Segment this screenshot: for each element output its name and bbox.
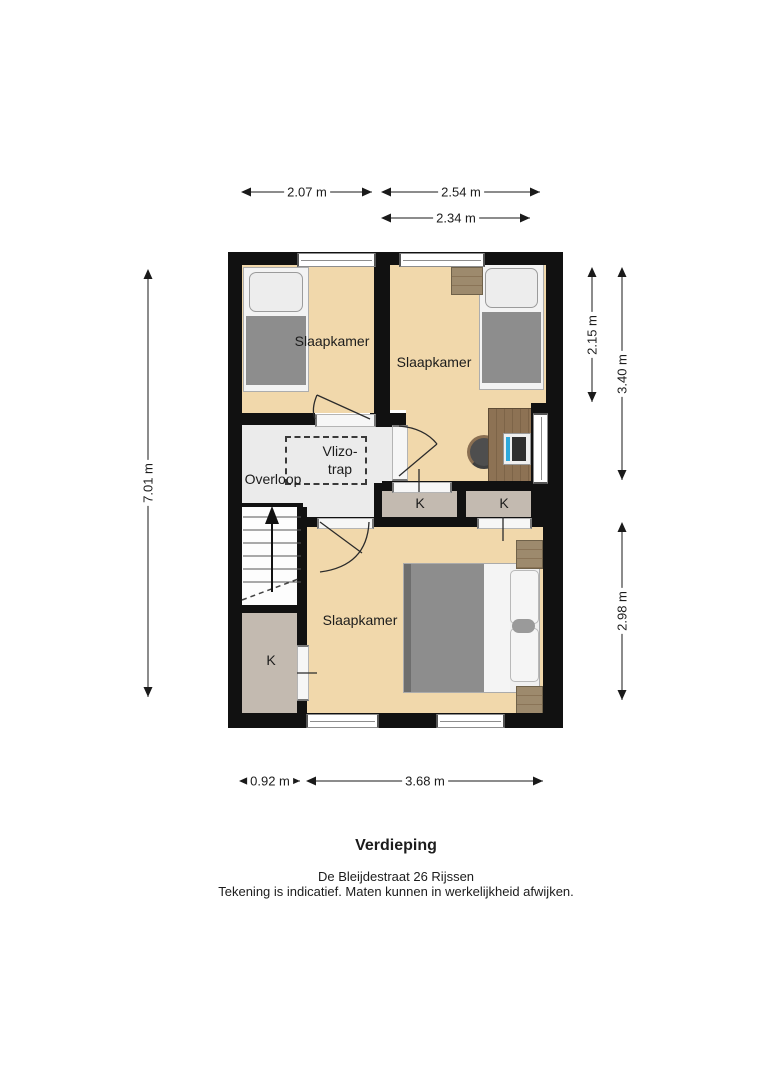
blanket xyxy=(482,312,541,383)
plan-disclaimer: Tekening is indicatief. Maten kunnen in … xyxy=(218,884,574,899)
laptop xyxy=(503,433,531,465)
dimension-label-top-1: 2.07 m xyxy=(284,185,330,200)
duvet xyxy=(484,564,510,692)
pillow xyxy=(510,570,539,624)
laptop-keyboard xyxy=(506,437,510,461)
room-label-closet-3: K xyxy=(266,652,275,668)
nightstand-top xyxy=(516,540,543,569)
double-bed xyxy=(403,563,540,693)
single-bed-left xyxy=(243,267,309,392)
plan-title: Verdieping xyxy=(355,837,437,855)
pillow xyxy=(510,628,539,682)
door-bedroom-top-left xyxy=(315,414,376,427)
dimension-label-right-1: 2.15 m xyxy=(585,312,600,358)
room-label-bedroom-top-left: Slaapkamer xyxy=(295,333,370,349)
window-top-left xyxy=(297,253,376,267)
room-label-attic-ladder: Vlizo- trap xyxy=(322,442,357,478)
window-bottom-left xyxy=(306,714,379,728)
door-bedroom-top-right xyxy=(392,425,408,481)
room-label-bedroom-bottom: Slaapkamer xyxy=(323,612,398,628)
staircase-floor xyxy=(242,505,302,605)
single-bed-right xyxy=(479,263,544,390)
desk xyxy=(488,408,533,483)
stairs-top-edge xyxy=(242,503,303,507)
wall-bottom xyxy=(228,713,563,728)
wall-right-upper xyxy=(546,252,563,403)
dimension-label-top-3: 2.34 m xyxy=(433,211,479,226)
room-label-closet-2: K xyxy=(499,495,508,511)
window-bottom-right xyxy=(436,714,505,728)
door-closet-3 xyxy=(297,645,309,701)
wall-right-lower xyxy=(543,527,563,713)
attic-ladder-line2: trap xyxy=(322,460,357,478)
nightstand-bottom xyxy=(516,686,543,714)
door-closet-1 xyxy=(392,482,452,493)
plan-address: De Bleijdestraat 26 Rijssen xyxy=(318,869,474,884)
dimension-label-right-3: 2.98 m xyxy=(615,588,630,634)
laptop-screen xyxy=(512,437,526,461)
window-right-nook xyxy=(533,413,548,484)
wall-closet3-top xyxy=(242,605,307,613)
room-label-landing: Overloop xyxy=(245,471,302,487)
door-closet-2 xyxy=(477,518,532,529)
floorplan-canvas: Slaapkamer Slaapkamer Slaapkamer Overloo… xyxy=(0,0,768,1086)
dimension-label-top-2: 2.54 m xyxy=(438,185,484,200)
dimension-label-right-2: 3.40 m xyxy=(615,351,630,397)
wall-landing-top-left xyxy=(242,413,315,425)
wall-left xyxy=(228,252,242,728)
dimension-label-bottom-2: 3.68 m xyxy=(402,774,448,789)
dimension-label-left: 7.01 m xyxy=(141,460,156,506)
window-top-right xyxy=(399,253,485,267)
pillow xyxy=(485,268,538,308)
wall-top xyxy=(228,252,563,265)
blanket xyxy=(404,564,485,692)
room-label-bedroom-top-right: Slaapkamer xyxy=(397,354,472,370)
blanket xyxy=(246,316,306,385)
bolster-pillow xyxy=(512,619,535,633)
wall-between-bedrooms xyxy=(374,252,390,420)
door-bedroom-bottom xyxy=(317,518,374,529)
dresser xyxy=(451,267,483,295)
attic-ladder-line1: Vlizo- xyxy=(322,442,357,460)
pillow xyxy=(249,272,303,312)
room-label-closet-1: K xyxy=(415,495,424,511)
dimension-label-bottom-1: 0.92 m xyxy=(247,774,293,789)
